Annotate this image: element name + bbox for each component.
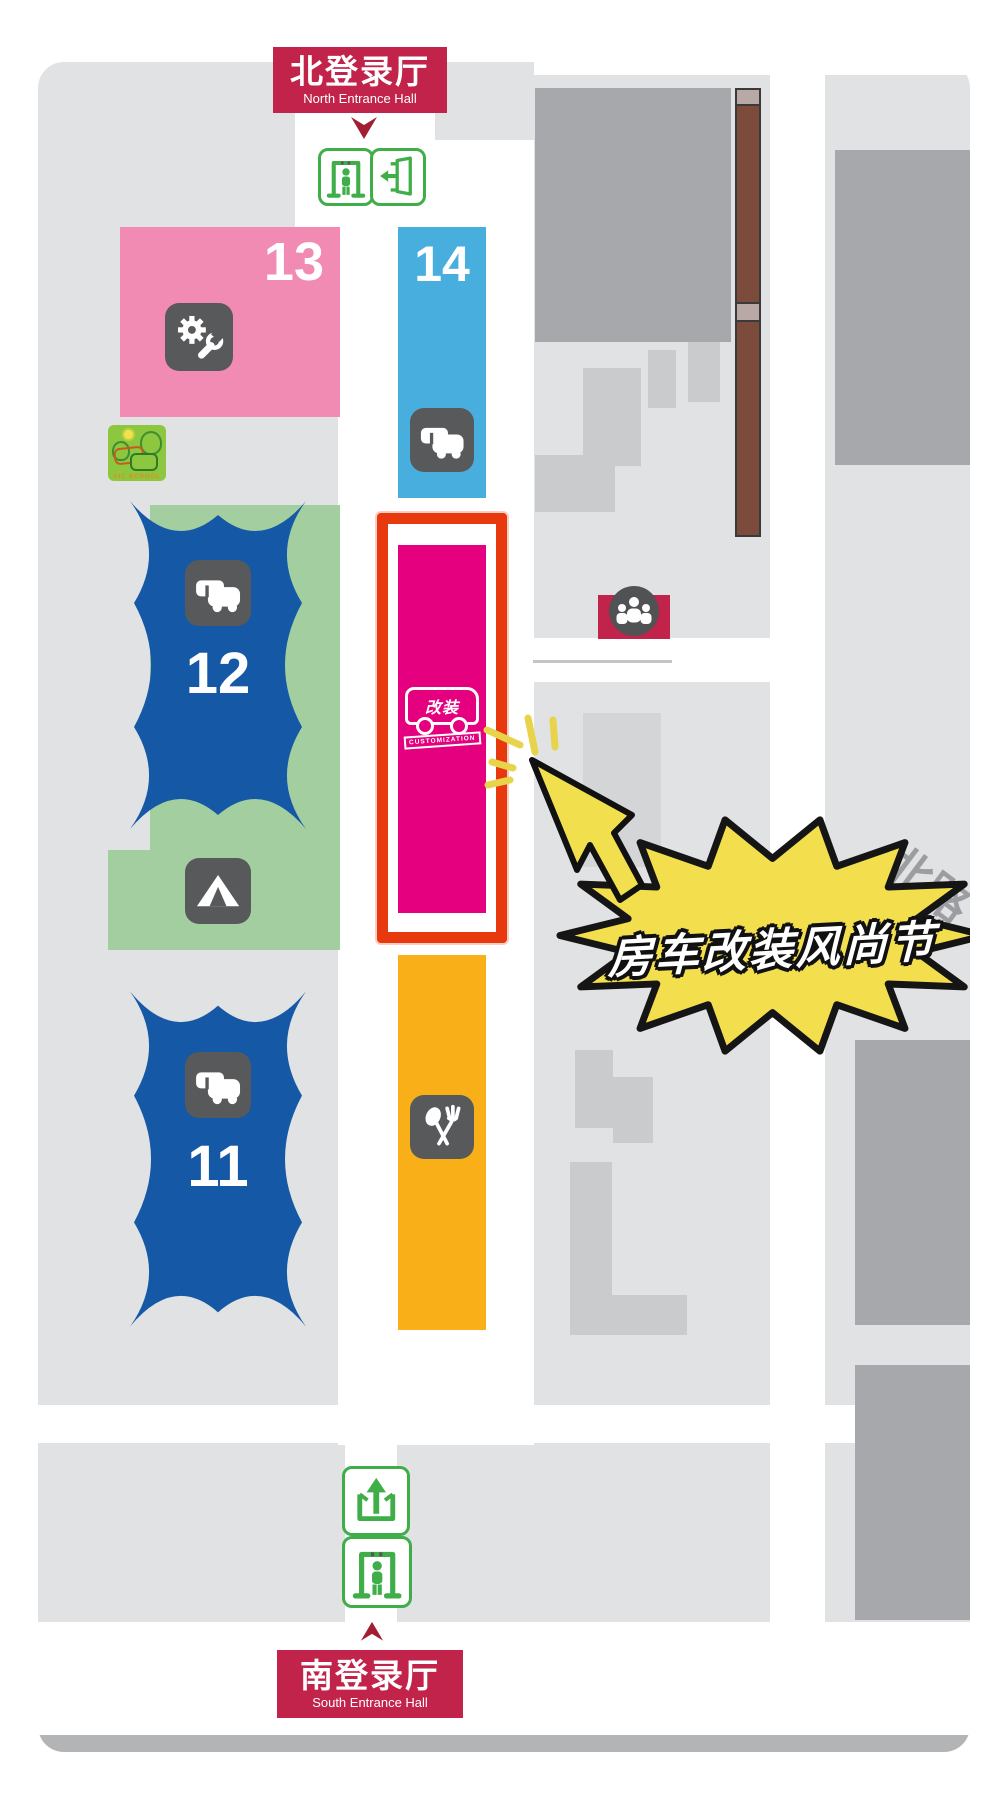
venue-map: 13 [38,62,970,1752]
road-bottom-horizontal [38,1405,970,1443]
building [535,455,615,512]
exit-up-icon [342,1466,410,1536]
security-gate-icon [318,148,374,206]
hall-13[interactable]: 13 [120,227,340,417]
hall-13-number: 13 [264,231,324,293]
walkway-segment-cap [737,90,759,106]
road-south-zone [38,1622,970,1738]
sun-icon [124,430,133,439]
venue-map-page: 13 [0,0,1008,1804]
building [855,1040,970,1325]
hall-11-number: 11 [118,1133,318,1200]
meeting-point-icon [596,581,672,641]
building [835,150,970,465]
aic-school-logo: AIC SCHOOL [108,425,166,481]
hall-12-number: 12 [118,640,318,707]
walkway-segment-cap [737,302,759,322]
south-entrance-banner: 南登录厅 South Entrance Hall [277,1650,463,1718]
rv-wheel [416,717,434,735]
north-entrance-title: 北登录厅 [290,55,430,90]
hall-14[interactable]: 14 [398,227,486,498]
north-entrance-subtitle: North Entrance Hall [303,92,416,106]
rv-outline-icon [130,453,158,471]
tent-icon [185,858,251,924]
festival-title: 房车改装风尚节 [555,903,970,990]
north-arrow-icon [350,116,378,140]
gear-wrench-icon [165,303,233,371]
building [570,1295,687,1335]
food-area[interactable] [398,955,486,1330]
building [583,368,641,466]
exit-door-icon [370,148,426,206]
security-gate-icon [342,1536,412,1608]
covered-walkway [735,88,761,537]
cursor-icon [480,720,680,910]
callout-label: 房车改装风尚节 [555,914,970,978]
north-entrance-banner: 北登录厅 North Entrance Hall [273,47,447,113]
south-arrow-icon [360,1621,384,1647]
building [648,350,676,408]
aic-school-label: AIC SCHOOL [108,474,166,480]
building [613,1077,653,1143]
road-top-strip [534,62,970,75]
building [688,342,720,402]
hall-14-number: 14 [398,235,486,293]
rv-icon [410,408,474,472]
booth-vehicle-label: 改装 [425,694,459,718]
building [855,1365,970,1620]
fork-spoon-icon [410,1095,474,1159]
rv-icon [185,1052,251,1118]
south-entrance-title: 南登录厅 [300,1659,440,1694]
building [535,88,731,342]
road-divider-line [533,660,672,663]
road-bottom-band [38,1735,970,1752]
rv-icon [185,560,251,626]
south-entrance-subtitle: South Entrance Hall [312,1696,428,1710]
